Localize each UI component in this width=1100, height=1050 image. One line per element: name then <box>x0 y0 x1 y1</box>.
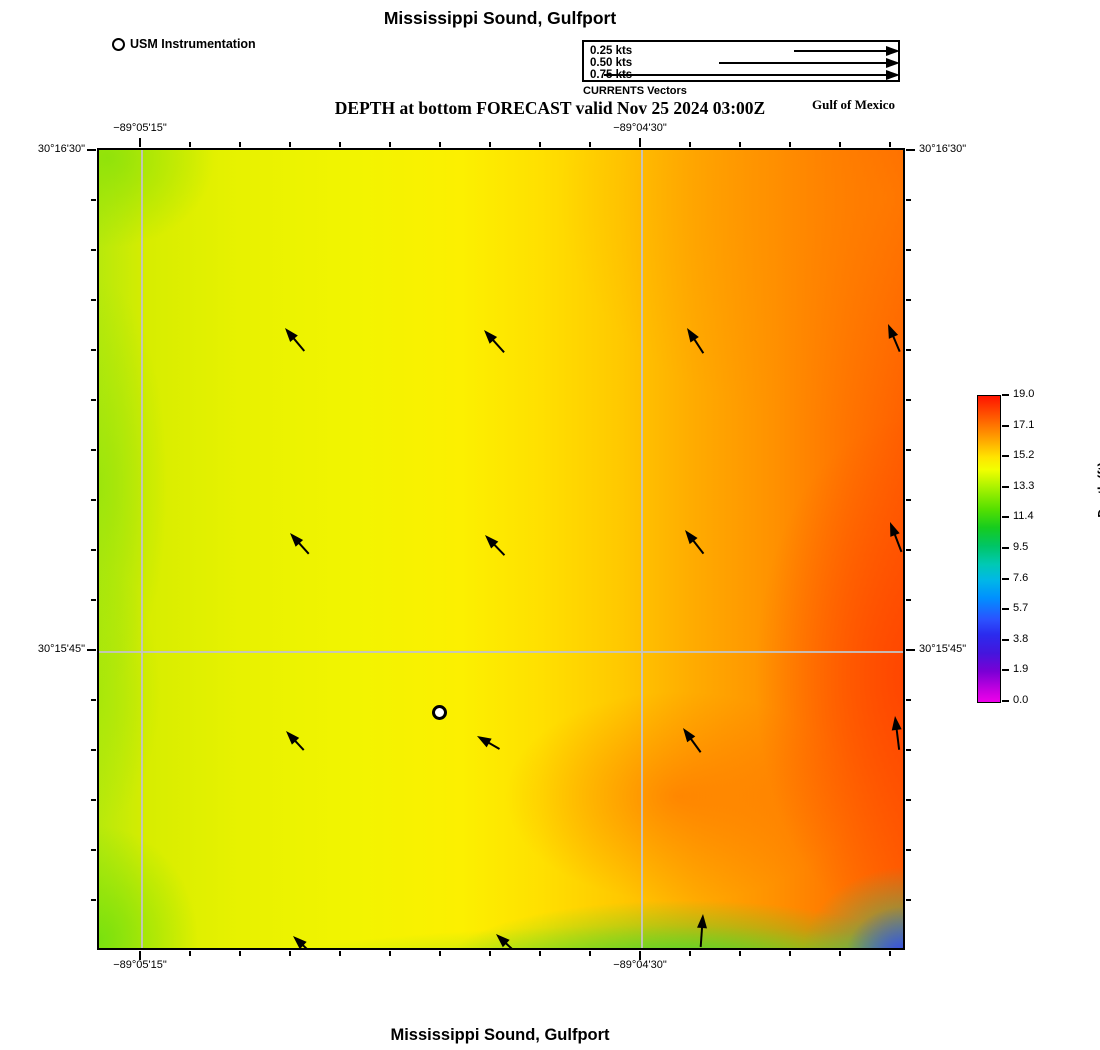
x-axis-label-bottom: −89°05'15" <box>113 959 167 971</box>
x-axis-tick <box>889 951 891 956</box>
current-vector-arrow <box>682 325 708 357</box>
colorbar-tick <box>1002 639 1009 641</box>
forecast-subtitle: DEPTH at bottom FORECAST valid Nov 25 20… <box>0 98 1100 119</box>
legend-speed-label: 0.25 kts <box>590 45 632 57</box>
y-axis-tick <box>906 699 911 701</box>
colorbar-tick <box>1002 394 1009 396</box>
arrow-shaft <box>688 736 701 753</box>
colorbar-axis-label: Depth (ft) <box>1096 420 1100 560</box>
arrow-shaft <box>893 532 903 553</box>
arrow-shaft <box>296 540 309 554</box>
page-title: Mississippi Sound, Gulfport <box>0 8 1000 29</box>
x-axis-tick <box>439 142 441 147</box>
arrow-shaft <box>503 941 516 950</box>
colorbar-tick-label: 15.2 <box>1013 449 1034 461</box>
colorbar-tick-label: 0.0 <box>1013 694 1028 706</box>
y-axis-tick <box>91 899 96 901</box>
x-axis-tick <box>839 142 841 147</box>
current-vector-arrow <box>481 531 509 559</box>
y-axis-tick <box>91 849 96 851</box>
x-axis-tick <box>639 951 641 960</box>
y-axis-label-left: 30°15'45" <box>0 643 85 655</box>
y-axis-tick <box>91 299 96 301</box>
arrow-shaft <box>699 925 703 947</box>
current-vector-arrow <box>480 326 509 356</box>
colorbar-tick <box>1002 486 1009 488</box>
colorbar-tick <box>1002 578 1009 580</box>
y-axis-tick <box>906 349 911 351</box>
current-vector-arrow <box>889 715 905 750</box>
x-axis-label-bottom: −89°04'30" <box>613 959 667 971</box>
x-axis-tick <box>889 142 891 147</box>
x-axis-tick <box>589 951 591 956</box>
x-axis-label-top: −89°05'15" <box>113 122 167 134</box>
gridline-vertical <box>641 150 643 948</box>
y-axis-tick <box>906 749 911 751</box>
x-axis-tick <box>589 142 591 147</box>
depth-heatmap <box>97 148 905 950</box>
x-axis-label-top: −89°04'30" <box>613 122 667 134</box>
arrow-shaft <box>891 334 901 352</box>
x-axis-tick <box>189 951 191 956</box>
y-axis-tick <box>91 549 96 551</box>
arrow-shaft <box>895 727 900 750</box>
x-axis-tick <box>489 951 491 956</box>
y-axis-tick <box>91 699 96 701</box>
y-axis-tick <box>87 149 96 151</box>
y-axis-tick <box>906 799 911 801</box>
colorbar-tick <box>1002 516 1009 518</box>
x-axis-tick <box>339 951 341 956</box>
x-axis-tick <box>139 951 141 960</box>
x-axis-tick <box>189 142 191 147</box>
current-vector-arrow <box>492 930 519 950</box>
colorbar-tick <box>1002 608 1009 610</box>
current-vector-arrow <box>282 727 309 754</box>
x-axis-tick <box>789 951 791 956</box>
colorbar-tick-label: 5.7 <box>1013 602 1028 614</box>
y-axis-tick <box>91 449 96 451</box>
y-axis-tick <box>906 499 911 501</box>
colorbar-tick <box>1002 700 1009 702</box>
x-axis-tick <box>439 951 441 956</box>
instrument-circle-icon <box>112 38 125 51</box>
colorbar-tick <box>1002 425 1009 427</box>
current-vectors-legend-box: 0.25 kts 0.50 kts 0.75 kts <box>582 40 900 82</box>
x-axis-tick <box>539 951 541 956</box>
x-axis-tick <box>339 142 341 147</box>
y-axis-tick <box>906 549 911 551</box>
current-vector-arrow <box>289 932 316 950</box>
y-axis-tick <box>906 849 911 851</box>
current-vector-arrow <box>884 520 905 554</box>
arrow-shaft <box>692 337 704 354</box>
current-vectors-caption: CURRENTS Vectors <box>583 85 687 97</box>
y-axis-tick <box>91 799 96 801</box>
gridline-horizontal <box>99 651 903 653</box>
x-axis-tick <box>239 951 241 956</box>
current-vector-arrow <box>286 529 314 558</box>
legend-arrow-shaft <box>719 62 886 64</box>
colorbar-tick-label: 17.1 <box>1013 419 1034 431</box>
y-axis-tick <box>91 749 96 751</box>
colorbar-tick-label: 1.9 <box>1013 663 1028 675</box>
arrow-shaft <box>293 738 305 751</box>
current-vector-arrow <box>474 731 503 754</box>
legend-speed-label: 0.50 kts <box>590 57 632 69</box>
x-axis-tick <box>289 142 291 147</box>
instrument-legend: USM Instrumentation <box>112 36 256 52</box>
y-axis-tick <box>906 399 911 401</box>
y-axis-tick <box>906 649 915 651</box>
y-axis-tick <box>91 349 96 351</box>
y-axis-tick <box>906 899 911 901</box>
y-axis-tick <box>91 249 96 251</box>
x-axis-tick <box>739 951 741 956</box>
legend-arrow-shaft <box>794 50 886 52</box>
x-axis-tick <box>489 142 491 147</box>
region-label: Gulf of Mexico <box>812 97 895 113</box>
legend-arrow-shaft <box>604 74 886 76</box>
arrow-shaft <box>490 337 505 353</box>
x-axis-tick <box>739 142 741 147</box>
x-axis-tick <box>239 142 241 147</box>
x-axis-tick <box>539 142 541 147</box>
colorbar-tick-label: 19.0 <box>1013 388 1034 400</box>
x-axis-tick <box>389 951 391 956</box>
y-axis-tick <box>906 199 911 201</box>
x-axis-tick <box>639 138 641 147</box>
y-axis-tick <box>906 449 911 451</box>
colorbar-tick-label: 9.5 <box>1013 541 1028 553</box>
current-vector-arrow <box>678 724 705 755</box>
colorbar-tick-label: 11.4 <box>1013 510 1034 522</box>
colorbar-tick-label: 3.8 <box>1013 633 1028 645</box>
arrow-shaft <box>691 538 705 555</box>
arrow-shaft <box>492 542 506 556</box>
colorbar-tick <box>1002 547 1009 549</box>
colorbar-tick-label: 7.6 <box>1013 572 1028 584</box>
y-axis-tick <box>91 199 96 201</box>
x-axis-tick <box>689 951 691 956</box>
y-axis-tick <box>906 249 911 251</box>
current-vector-arrow <box>695 914 709 948</box>
current-vector-arrow <box>680 526 708 557</box>
y-axis-tick <box>906 149 915 151</box>
bottom-title: Mississippi Sound, Gulfport <box>0 1026 1000 1045</box>
y-axis-label-right: 30°16'30" <box>919 143 966 155</box>
y-axis-label-right: 30°15'45" <box>919 643 966 655</box>
x-axis-tick <box>689 142 691 147</box>
depth-colorbar <box>977 395 1001 703</box>
arrow-shaft <box>291 336 305 352</box>
legend-arrow-head-icon <box>886 58 900 68</box>
x-axis-tick <box>389 142 391 147</box>
instrument-legend-label: USM Instrumentation <box>130 37 256 51</box>
y-axis-label-left: 30°16'30" <box>0 143 85 155</box>
gridline-vertical <box>141 150 143 948</box>
x-axis-tick <box>789 142 791 147</box>
arrow-shaft <box>486 740 500 750</box>
legend-arrow-head-icon <box>886 70 900 80</box>
y-axis-tick <box>906 299 911 301</box>
x-axis-tick <box>839 951 841 956</box>
x-axis-tick <box>139 138 141 147</box>
arrow-head-icon <box>883 322 898 339</box>
colorbar-tick <box>1002 455 1009 457</box>
colorbar-tick-label: 13.3 <box>1013 480 1034 492</box>
x-axis-tick <box>289 951 291 956</box>
y-axis-tick <box>91 399 96 401</box>
legend-arrow-head-icon <box>886 46 900 56</box>
current-vector-arrow <box>280 324 308 355</box>
colorbar-tick <box>1002 669 1009 671</box>
instrument-site-marker <box>432 705 447 720</box>
y-axis-tick <box>87 649 96 651</box>
current-vector-arrow <box>882 322 905 354</box>
y-axis-tick <box>91 499 96 501</box>
y-axis-tick <box>906 599 911 601</box>
arrow-shaft <box>300 943 313 950</box>
y-axis-tick <box>91 599 96 601</box>
